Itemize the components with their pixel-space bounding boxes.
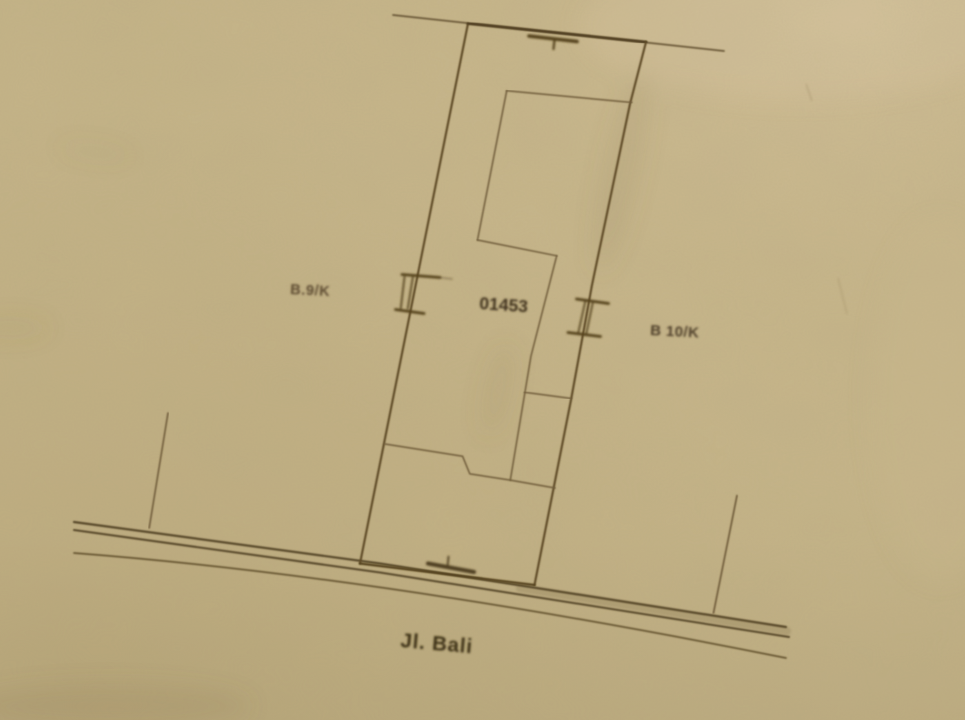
svg-text:01453: 01453 [479,293,529,316]
svg-text:B 10/K: B 10/K [650,322,700,342]
svg-text:B.9/K: B.9/K [290,282,331,300]
